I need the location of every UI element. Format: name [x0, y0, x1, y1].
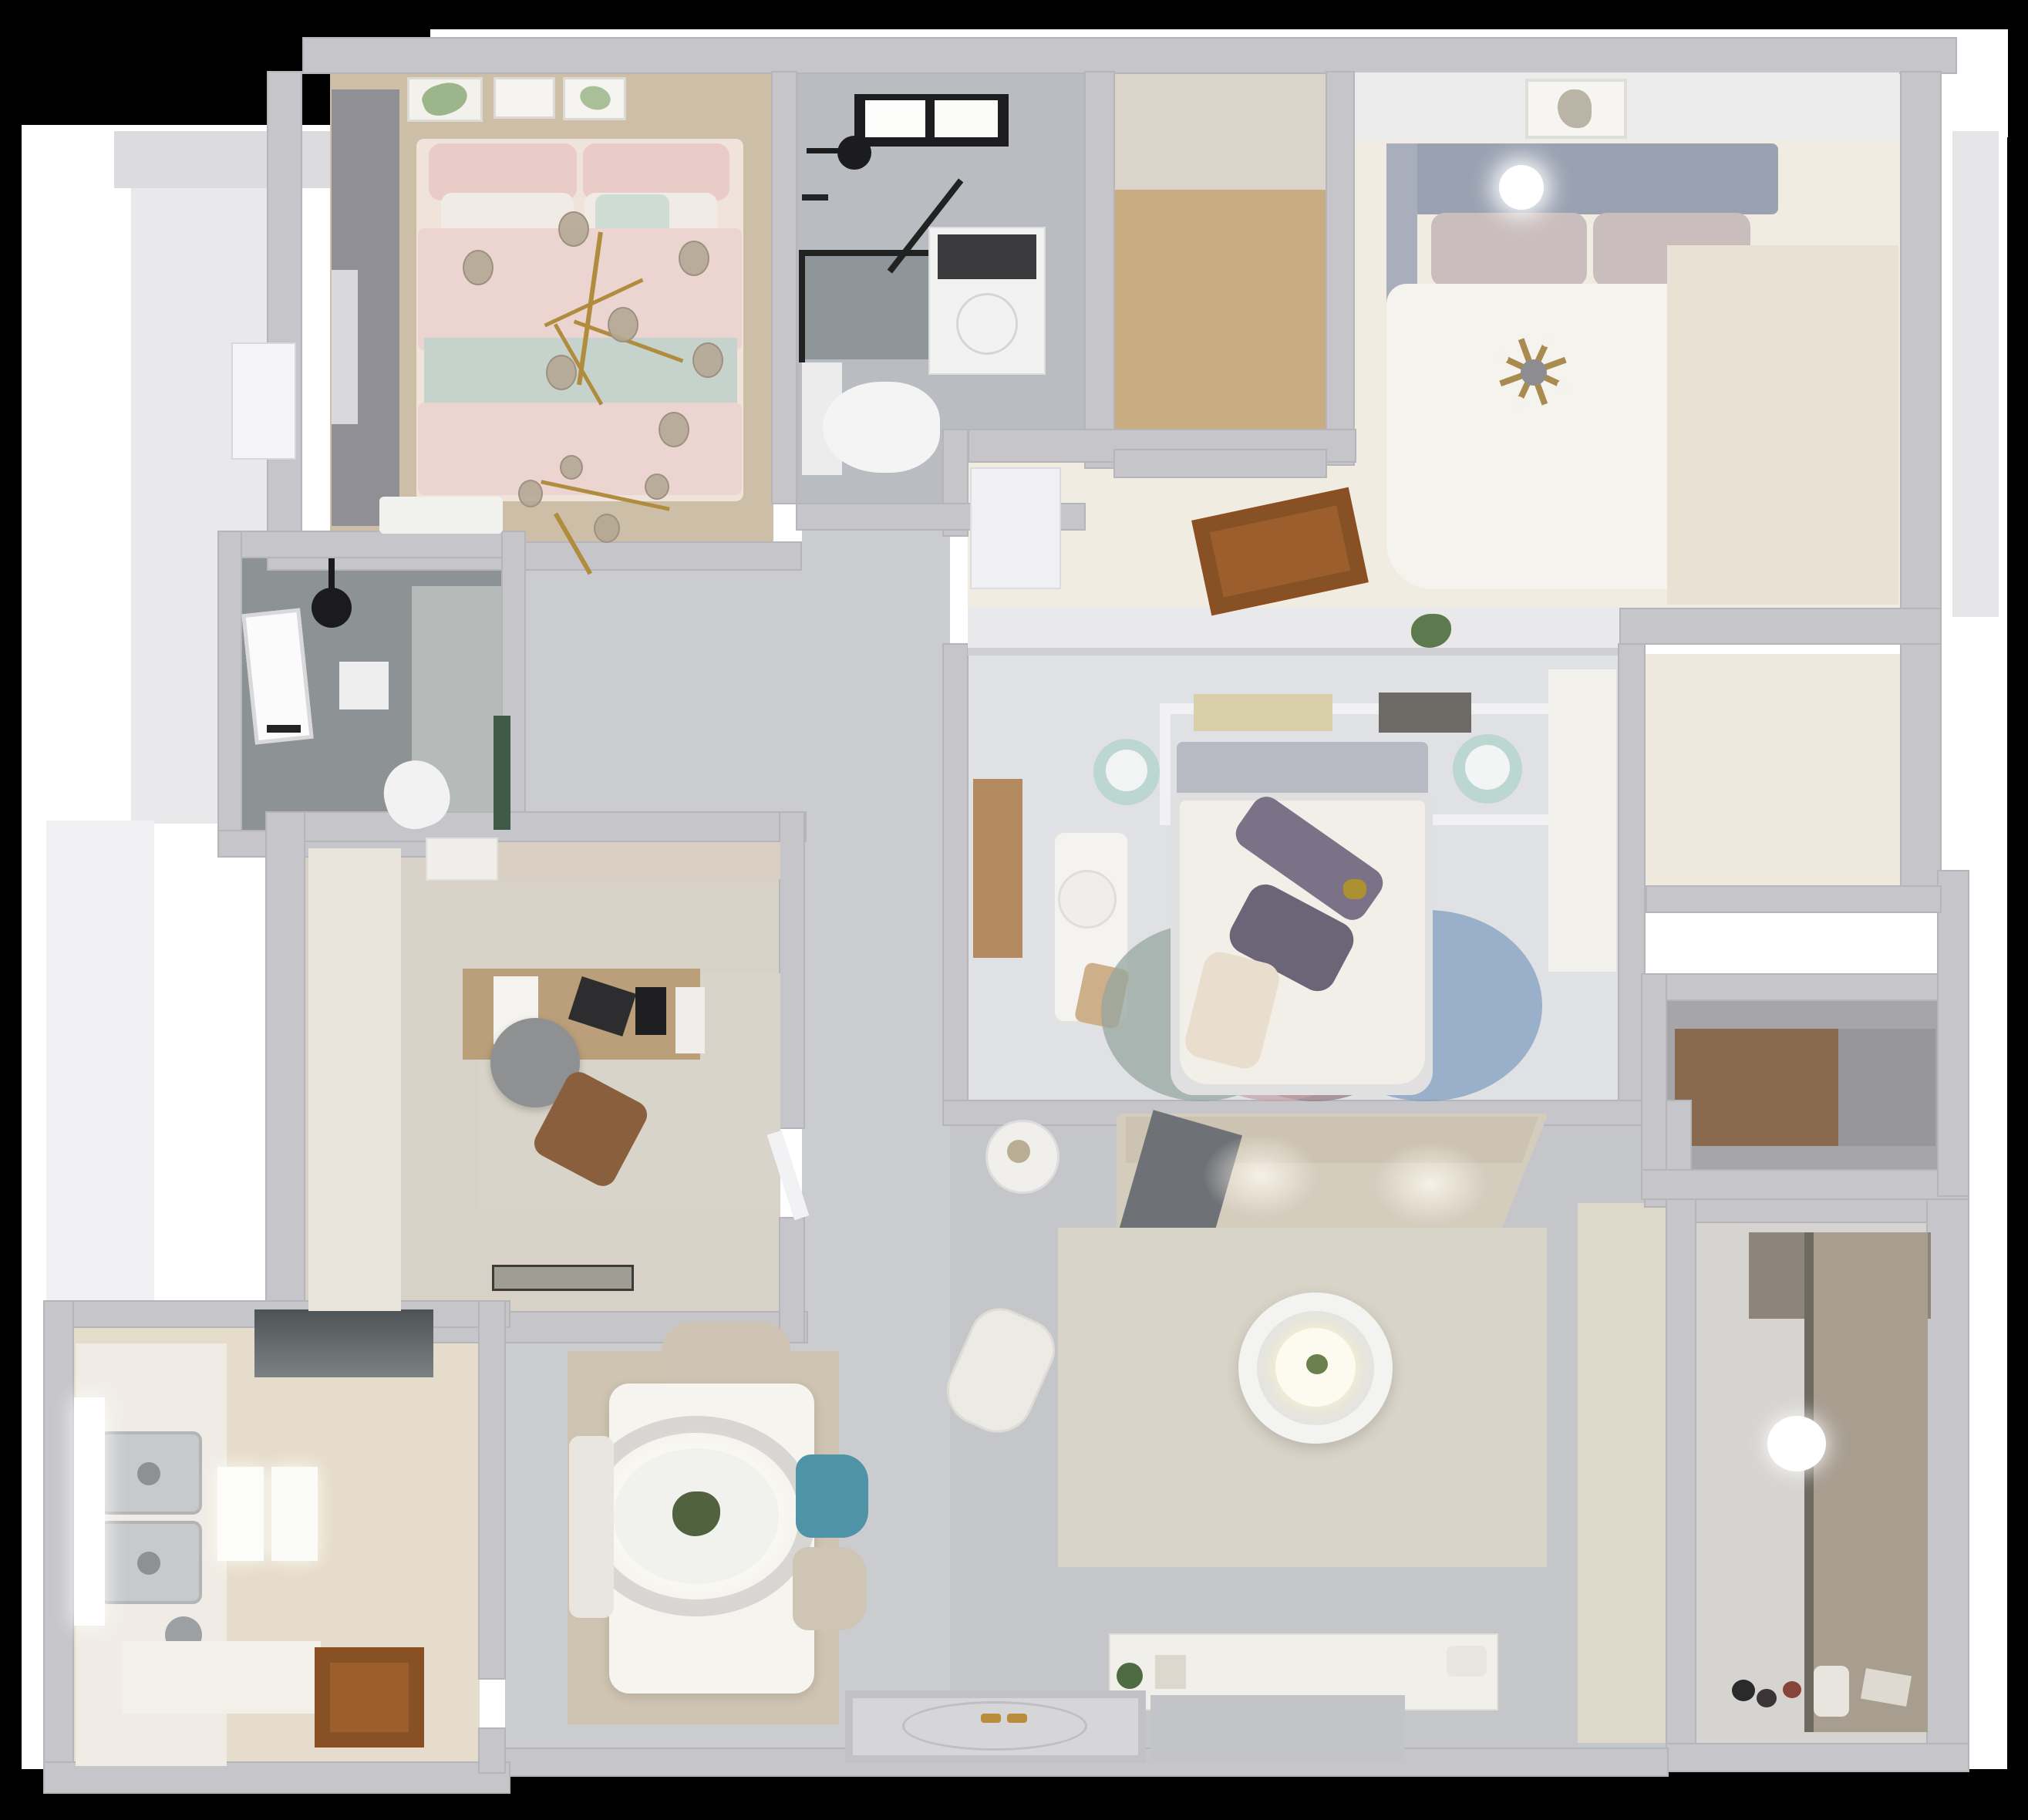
master-globe-7 — [659, 412, 689, 447]
bedroom2-ceiling-lamp — [1499, 165, 1544, 210]
wall-bathroom-closet — [1084, 71, 1115, 469]
balcony-lamp — [1767, 1416, 1826, 1471]
wall-study-top — [265, 811, 807, 842]
master-globe2-4 — [560, 455, 583, 480]
bathroom-washer-panel — [938, 234, 1036, 279]
bedroom3-desk-chair — [1058, 870, 1117, 929]
bedroom3-wood-strip — [973, 779, 1022, 958]
kitchen-counter-bottom — [122, 1641, 321, 1714]
floor-gap-strip — [950, 1106, 969, 1751]
bedroom3-stool-left-top — [1106, 750, 1147, 791]
wall-closet-bedroom2 — [1326, 71, 1355, 466]
wall-under-wardrobe-b — [1646, 885, 1942, 913]
bedroom2-pillow-left — [1431, 213, 1587, 287]
bedroom3-gold-sprig — [1343, 879, 1366, 899]
shower-room-head — [312, 588, 352, 628]
wall-shower-left — [217, 531, 242, 858]
kitchen-window — [74, 1397, 105, 1626]
bedroom3-top-shelf-band — [968, 608, 1620, 651]
shower-room-shelf — [339, 662, 389, 709]
master-pillow-pink-right — [583, 143, 729, 201]
master-art-frame-2 — [494, 77, 555, 119]
bedroom3-top-partition — [968, 648, 1620, 656]
kitchen-hood — [254, 1309, 433, 1377]
entry-door-handle-left — [981, 1714, 1001, 1723]
balcony-toy-1 — [1732, 1680, 1755, 1701]
master-globe2-3 — [645, 474, 669, 500]
bathroom-skylight-pane-1 — [865, 100, 925, 137]
master-globe-5 — [692, 342, 723, 378]
shadow-right-column — [1952, 131, 1999, 617]
wall-kitchen-right — [478, 1300, 506, 1680]
bedroom2-fan-tip-1 — [1557, 379, 1571, 393]
entry-doormat-ornament — [902, 1701, 1087, 1751]
balcony-blinds-frame — [1804, 1232, 1814, 1732]
closet-wall-band — [1113, 74, 1327, 191]
shower-room-stem — [328, 558, 335, 592]
wall-bedroom3-left — [942, 643, 969, 1106]
master-window-sill — [332, 270, 358, 424]
wall-kitchen-left — [43, 1300, 74, 1794]
living-ceiling-glow-2 — [1373, 1141, 1488, 1226]
kitchen-sink-1-drain — [137, 1462, 160, 1485]
niche-wood-shelf — [1675, 1029, 1838, 1146]
master-pillow-pink-left — [429, 143, 577, 201]
bedroom3-stool-right-top — [1465, 745, 1510, 790]
bathroom-mixer — [802, 194, 828, 201]
balcony-blinds-main — [1814, 1232, 1928, 1732]
living-tile-inlay — [1578, 1203, 1666, 1743]
wall-left-master — [267, 71, 302, 549]
shadow-bottom-left — [46, 821, 154, 1314]
bedroom2-wall-panel — [1355, 72, 1899, 140]
wall-balcony-right — [1926, 1197, 1969, 1771]
wall-top-outer — [302, 37, 1957, 74]
wall-kitchen-right-lower — [478, 1727, 506, 1774]
master-globe2-2 — [594, 514, 620, 543]
master-globe-2 — [679, 241, 709, 276]
study-cabinet-top — [426, 838, 498, 881]
master-globe-3 — [463, 250, 494, 285]
study-doormat — [492, 1265, 634, 1291]
dining-chair-beige-right — [793, 1547, 867, 1630]
wall-shower-top — [217, 531, 526, 558]
bedroom2-art-sketch — [1558, 89, 1592, 128]
wall-closet-bottom — [1113, 449, 1327, 478]
shower-room-valves — [267, 725, 301, 733]
bathroom-shower-arm — [807, 148, 844, 153]
bedroom3-books-row — [1194, 694, 1332, 731]
kitchen-light-panel-2 — [271, 1467, 318, 1561]
wall-living-balcony — [1666, 1197, 1696, 1744]
shower-room-plant-strip — [494, 716, 510, 830]
bathroom-toilet-bowl — [823, 382, 940, 473]
bedroom3-headboard — [1177, 742, 1428, 799]
kitchen-light-panel-1 — [217, 1467, 264, 1561]
bedroom2-headboard — [1413, 143, 1778, 214]
dining-chair-top — [662, 1322, 791, 1390]
bedroom2-fan-tip-3 — [1511, 396, 1525, 410]
master-globe-6 — [546, 355, 577, 390]
bedroom2-wardrobe-slats — [1667, 245, 1898, 605]
dining-bench — [569, 1436, 614, 1618]
living-console-box — [1155, 1655, 1186, 1689]
door-kitchen-wood — [315, 1647, 424, 1748]
master-bench — [379, 497, 503, 534]
wall-niche-right-outer — [1937, 870, 1969, 1197]
wall-niche-bottom — [1641, 1169, 1969, 1200]
balcony-stool — [1814, 1666, 1849, 1717]
wall-kitchen-bottom — [43, 1761, 510, 1794]
balcony-toy-2 — [1757, 1689, 1777, 1707]
entry-door-handle-right — [1007, 1714, 1027, 1723]
balcony-toy-3 — [1783, 1681, 1801, 1698]
wall-right-outer — [1900, 71, 1942, 901]
bedroom2-fan-hub — [1521, 359, 1547, 386]
bedroom2-ac-vent — [970, 467, 1061, 589]
bathroom-skylight-pane-2 — [935, 100, 998, 137]
living-ceiling-glow-1 — [1203, 1134, 1319, 1218]
wall-master-bathroom — [771, 71, 797, 504]
study-shelf-white — [675, 987, 705, 1053]
study-monitor — [635, 987, 666, 1035]
master-globe-4 — [608, 307, 638, 342]
bedroom3-book-stack — [1379, 693, 1471, 733]
kitchen-sink-2-drain — [137, 1552, 160, 1575]
bedroom2-fan-tip-4 — [1541, 333, 1555, 347]
wall-balcony-bottom — [1666, 1743, 1969, 1772]
entry-open-door-panel — [1150, 1695, 1405, 1760]
living-coffee-table-plant — [1306, 1354, 1328, 1374]
bedroom3-wardrobe-slats — [1646, 654, 1900, 885]
bathroom-washer-drum — [956, 293, 1018, 355]
living-console-items-right — [1447, 1646, 1487, 1677]
wall-niche-top — [1641, 973, 1969, 1001]
study-curtain — [308, 848, 401, 1311]
wall-study-right-lower — [779, 1217, 805, 1343]
wall-study-right-upper — [779, 811, 805, 1129]
bathroom-shower-frame-left — [799, 254, 805, 362]
wall-bedroom2-bottom-right — [1619, 608, 1942, 645]
bedroom3-curtain-right — [1548, 669, 1616, 972]
hall-floor-upper — [513, 571, 804, 839]
door-white-left-exterior — [231, 342, 296, 460]
dining-chair-teal — [796, 1454, 868, 1538]
living-side-table-decor — [1007, 1140, 1030, 1163]
master-globe2-1 — [518, 480, 543, 507]
master-globe-1 — [558, 211, 589, 247]
closet-floor — [1113, 190, 1327, 450]
floor-plan-canvas — [0, 0, 2028, 1820]
master-duvet-bottom — [418, 403, 742, 495]
niche-gray-panel — [1838, 1029, 1935, 1146]
living-console-plant — [1117, 1663, 1143, 1689]
wall-niche-left — [1641, 973, 1667, 1197]
wall-study-left — [265, 811, 305, 1317]
bedroom2-fan-tip-2 — [1494, 350, 1508, 364]
